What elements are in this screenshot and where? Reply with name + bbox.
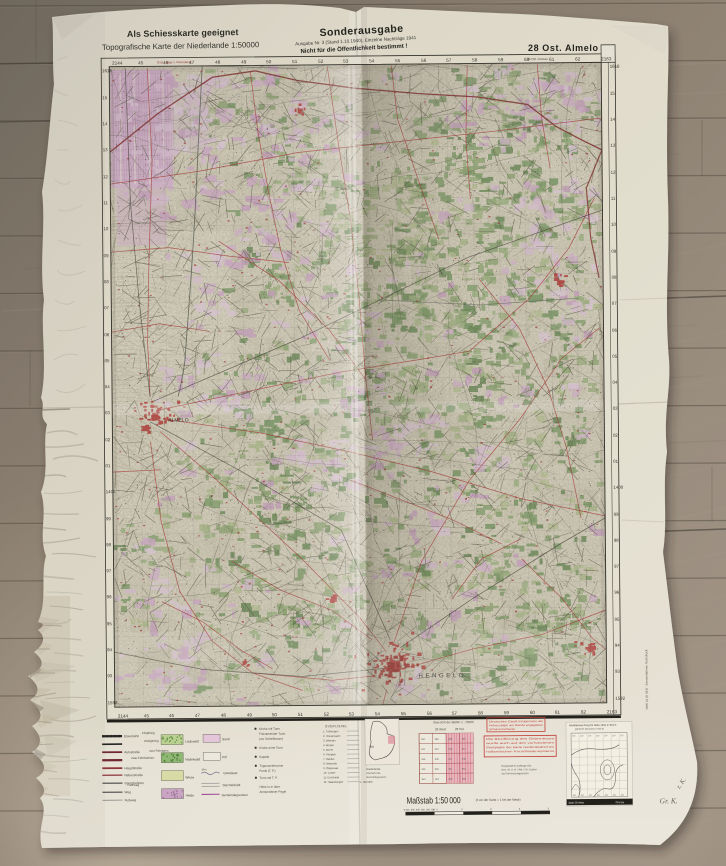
svg-text:28 Ost. Almelo: 28 Ost. Almelo	[528, 43, 599, 53]
svg-text:Als Schiesskarte geeignet: Als Schiesskarte geeignet	[127, 27, 239, 39]
